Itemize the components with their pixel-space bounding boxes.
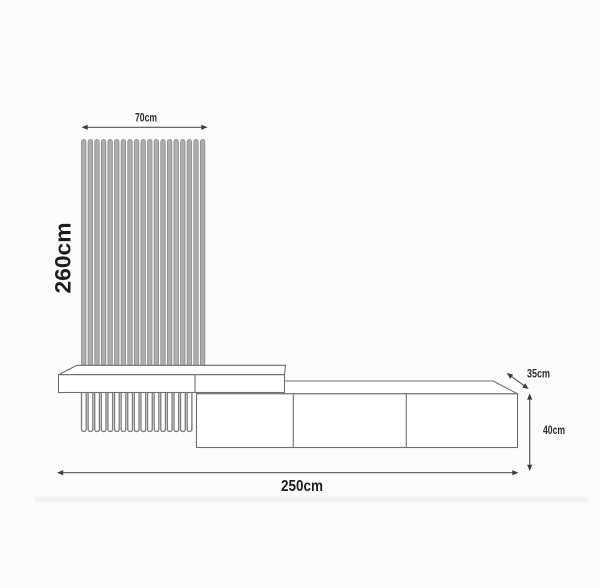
svg-text:35cm: 35cm bbox=[527, 369, 550, 381]
svg-text:40cm: 40cm bbox=[543, 425, 565, 437]
svg-text:260cm: 260cm bbox=[51, 223, 76, 294]
svg-text:250cm: 250cm bbox=[281, 478, 323, 495]
svg-text:70cm: 70cm bbox=[135, 113, 157, 125]
